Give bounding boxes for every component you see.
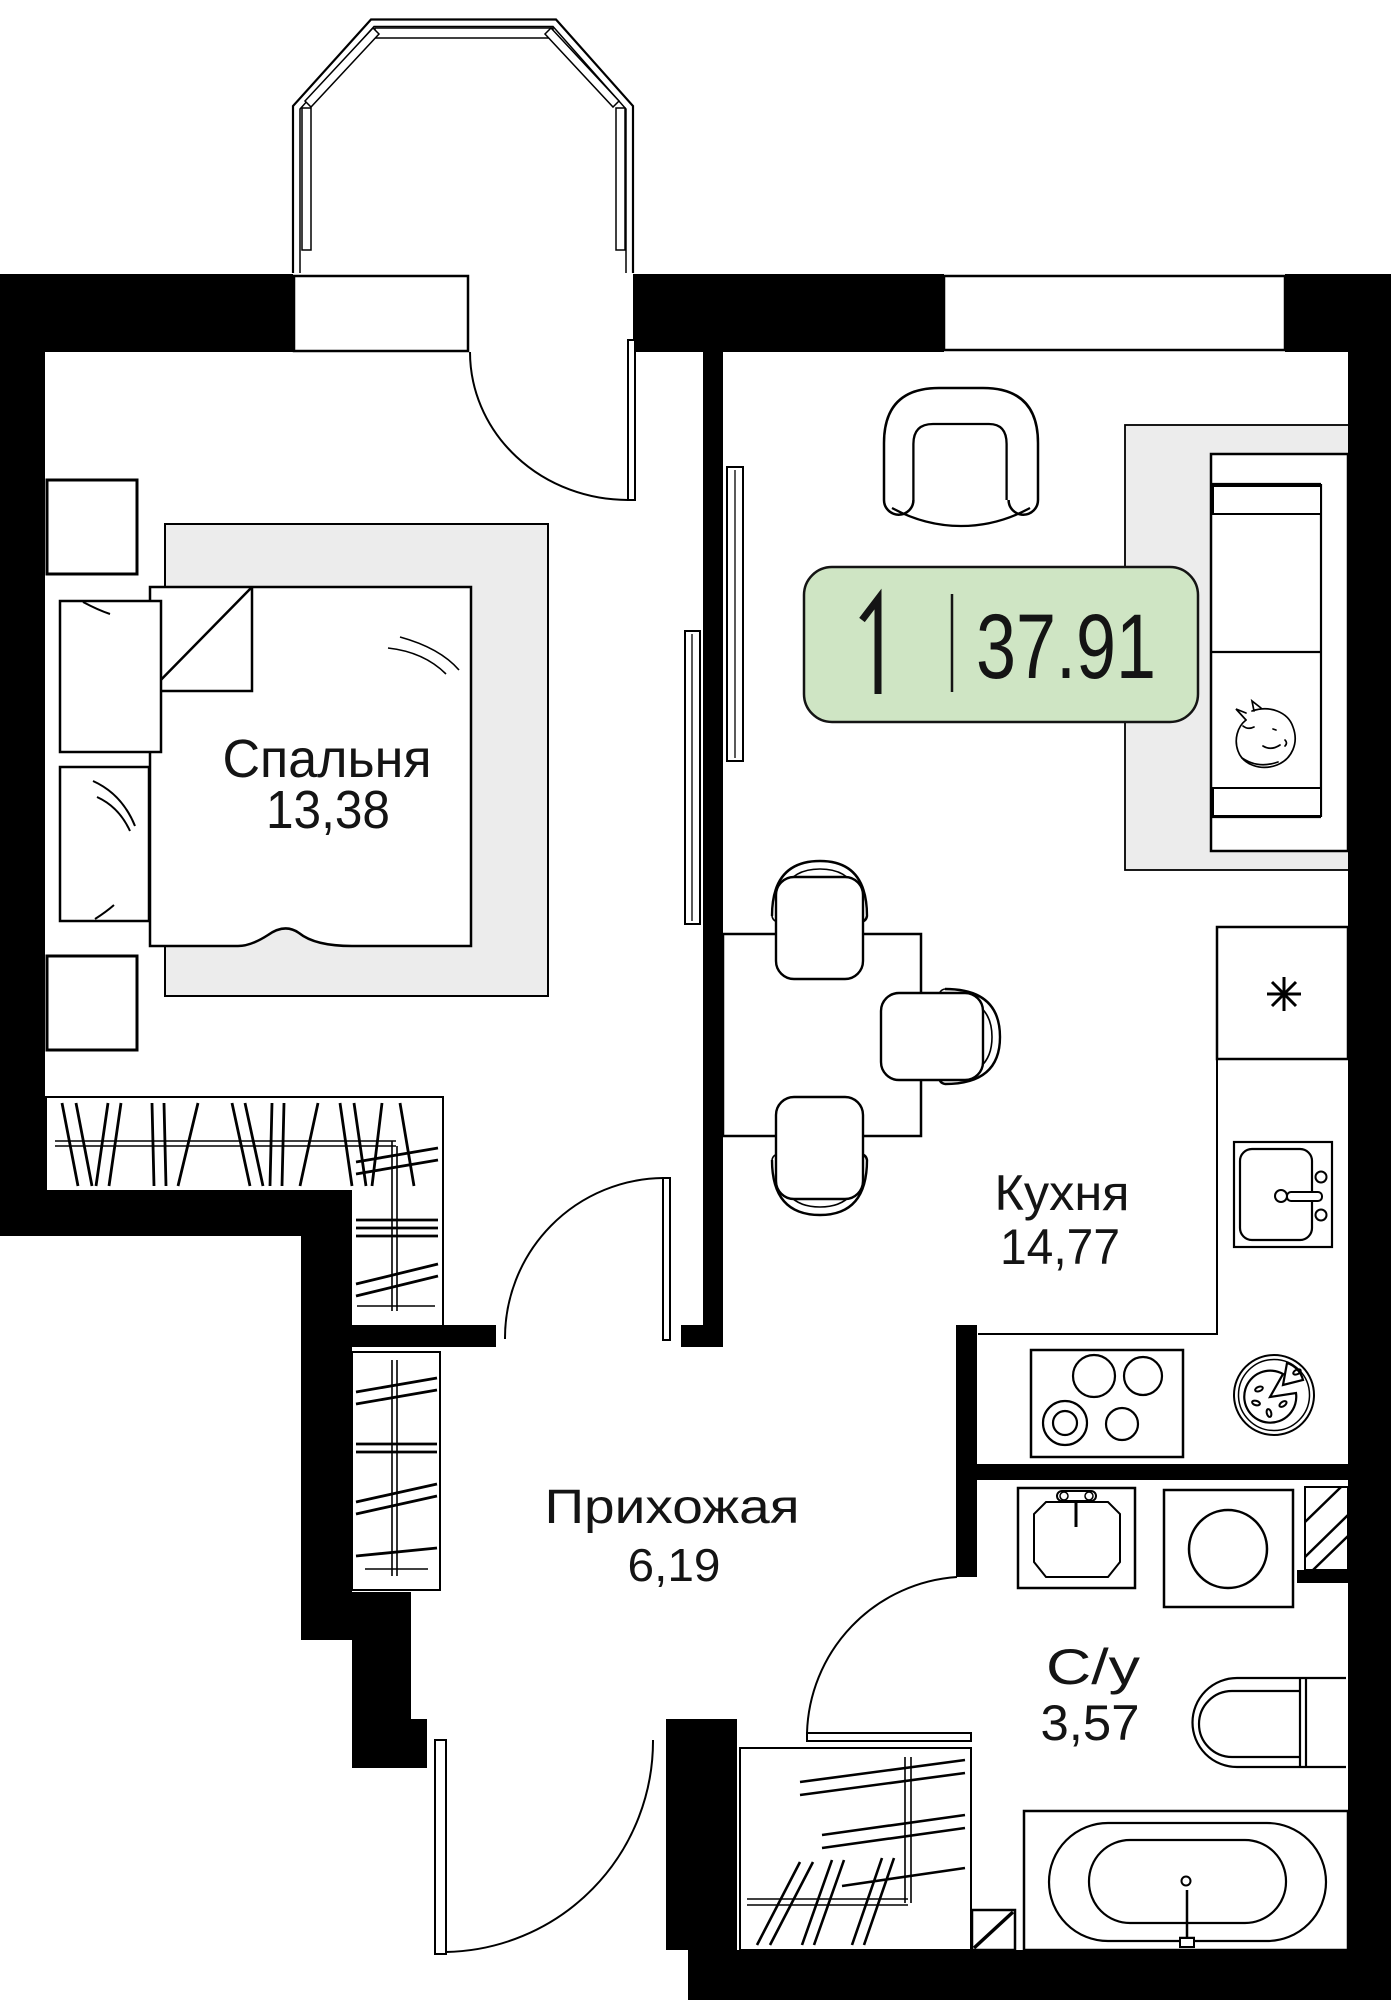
svg-text:С/у: С/у	[1046, 1639, 1140, 1695]
svg-text:13,38: 13,38	[266, 780, 390, 840]
svg-text:Прихожая: Прихожая	[545, 1481, 800, 1534]
svg-text:Кухня: Кухня	[995, 1165, 1130, 1221]
svg-text:6,19: 6,19	[628, 1539, 721, 1591]
svg-text:3,57: 3,57	[1041, 1695, 1140, 1751]
svg-text:37.91: 37.91	[976, 596, 1156, 698]
svg-text:14,77: 14,77	[1000, 1219, 1120, 1275]
